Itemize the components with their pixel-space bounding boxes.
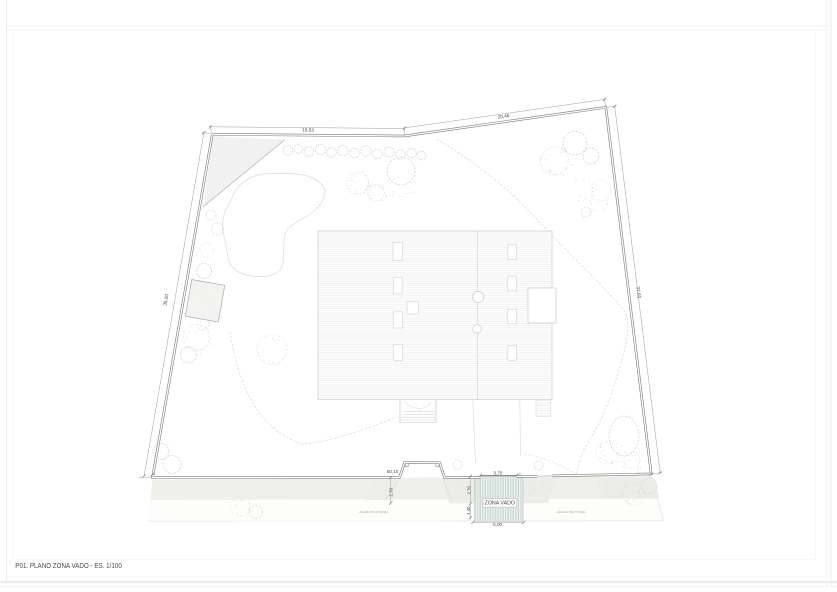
svg-text:2,70: 2,70 xyxy=(466,486,471,495)
svg-text:ACERA PEATONAL: ACERA PEATONAL xyxy=(557,510,587,514)
svg-text:5,00: 5,00 xyxy=(493,522,502,527)
svg-text:ACERA PEATONAL: ACERA PEATONAL xyxy=(359,510,389,514)
svg-text:3,70: 3,70 xyxy=(494,470,503,475)
svg-text:2,79: 2,79 xyxy=(389,488,394,497)
svg-text:50,10: 50,10 xyxy=(387,469,399,474)
svg-text:19,53: 19,53 xyxy=(302,128,314,133)
svg-text:ZONA VADO: ZONA VADO xyxy=(485,501,516,507)
svg-text:P01. PLANO ZONA VADO - ES. 1/1: P01. PLANO ZONA VADO - ES. 1/100 xyxy=(15,561,122,570)
svg-text:1,40: 1,40 xyxy=(466,506,471,515)
